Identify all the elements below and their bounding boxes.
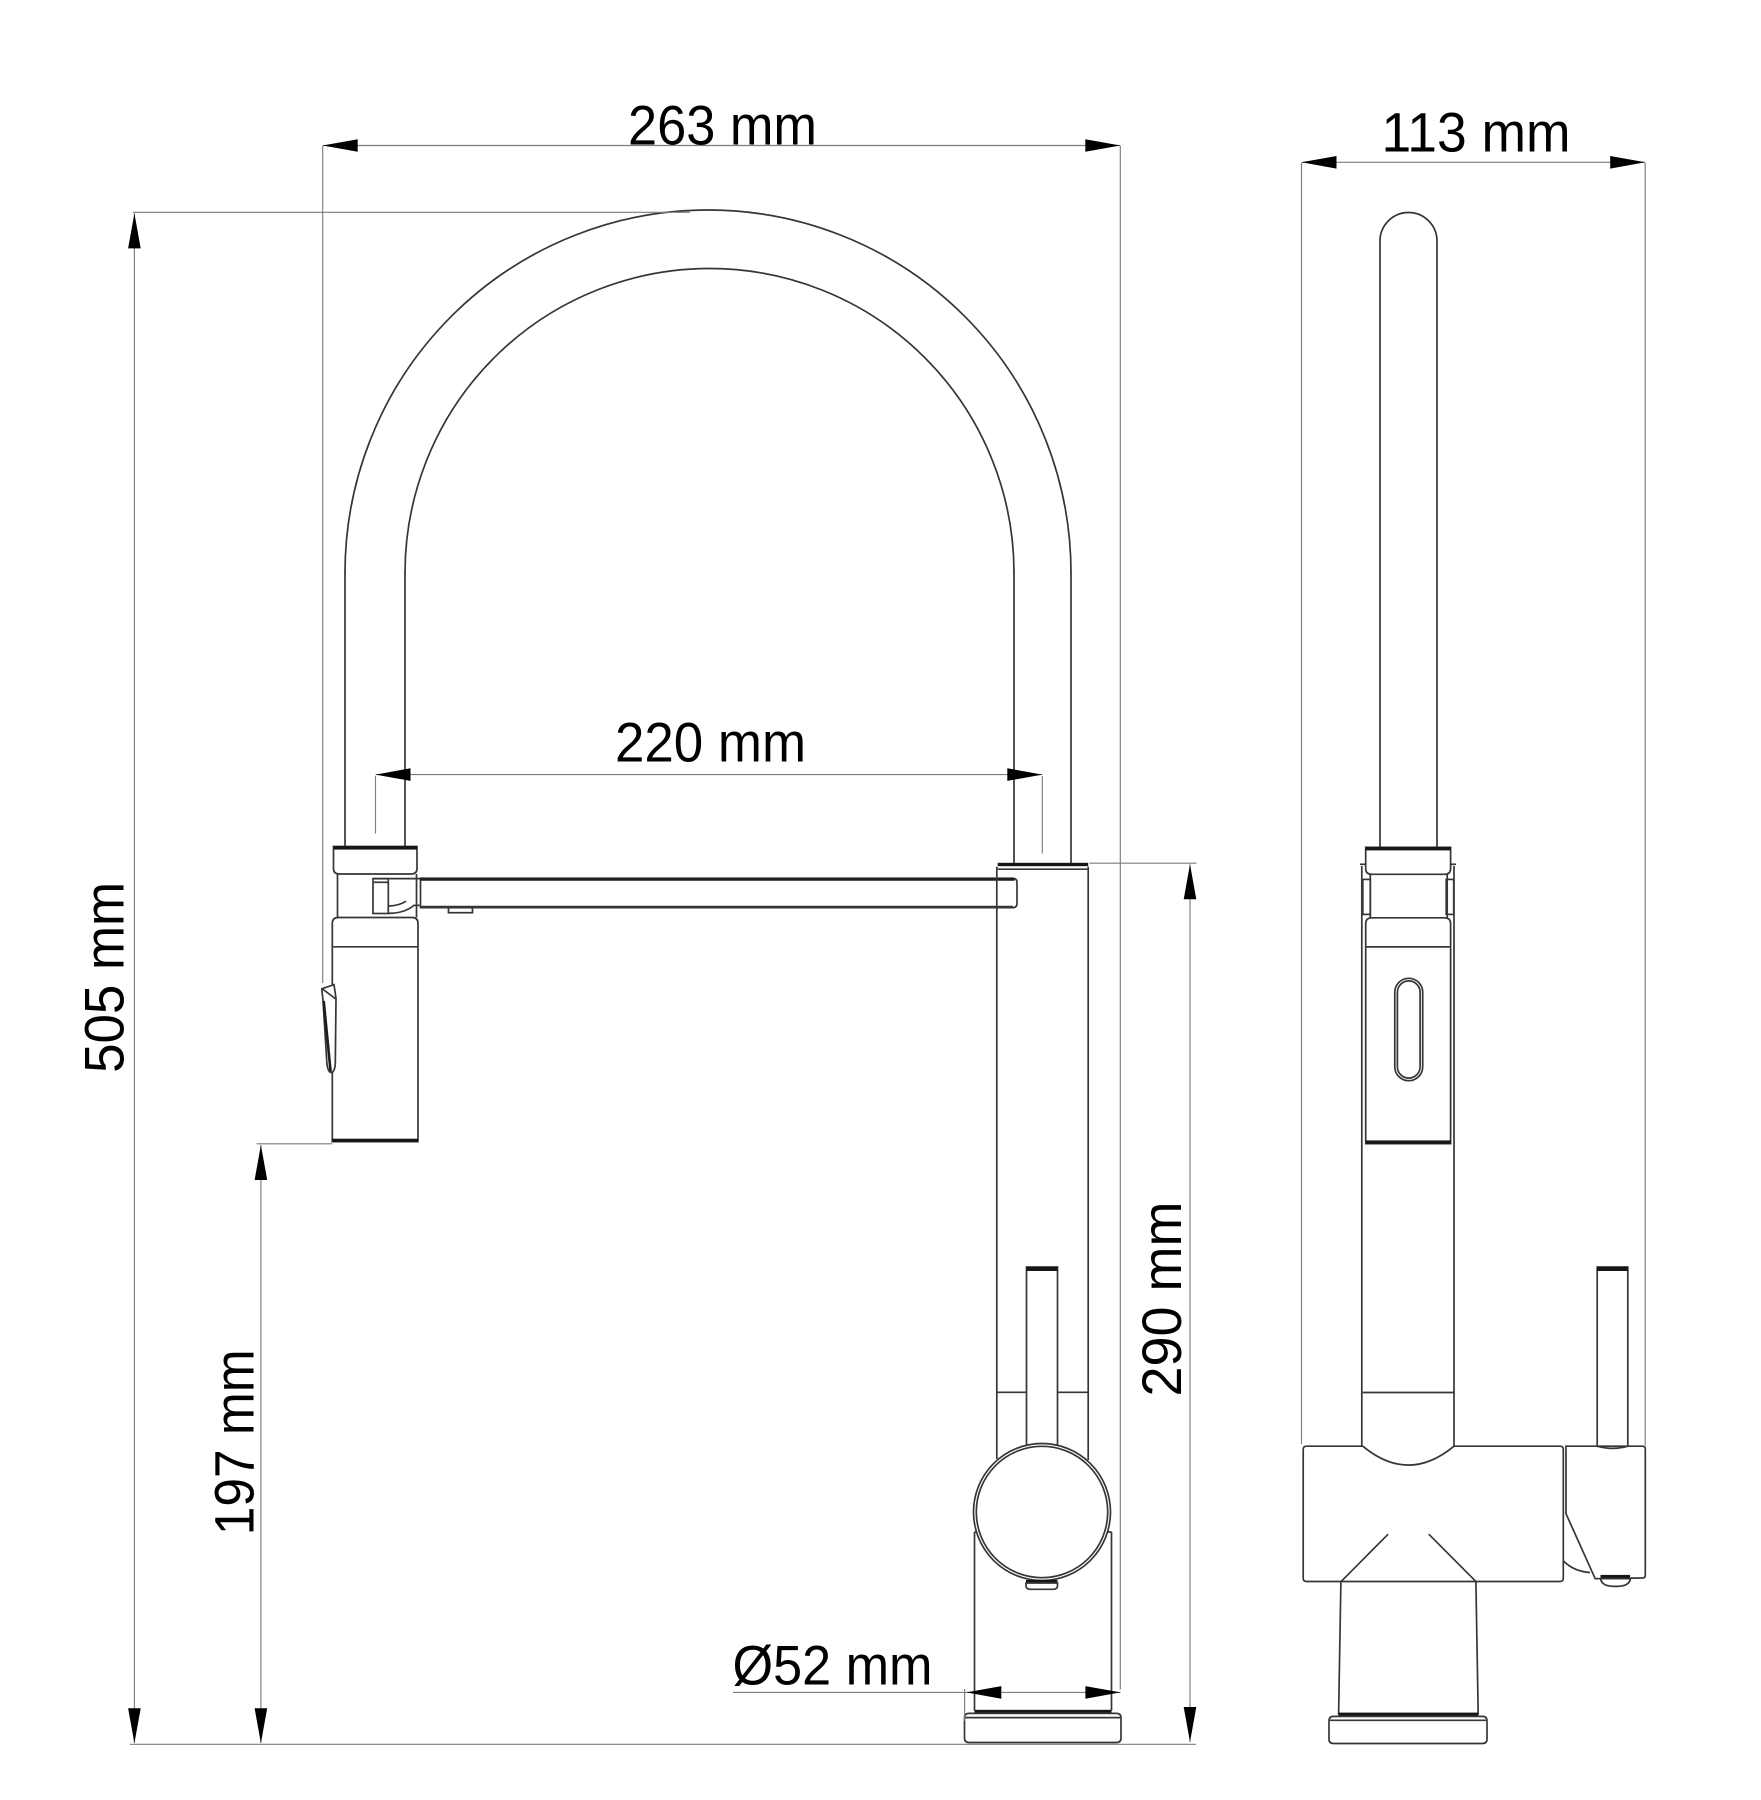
svg-text:263 mm: 263 mm <box>628 94 817 157</box>
svg-text:113 mm: 113 mm <box>1382 100 1571 163</box>
svg-text:220 mm: 220 mm <box>615 711 806 774</box>
svg-text:290 mm: 290 mm <box>1130 1202 1193 1397</box>
svg-text:197 mm: 197 mm <box>202 1349 265 1535</box>
svg-text:Ø52 mm: Ø52 mm <box>733 1633 933 1696</box>
svg-text:505 mm: 505 mm <box>73 882 136 1073</box>
